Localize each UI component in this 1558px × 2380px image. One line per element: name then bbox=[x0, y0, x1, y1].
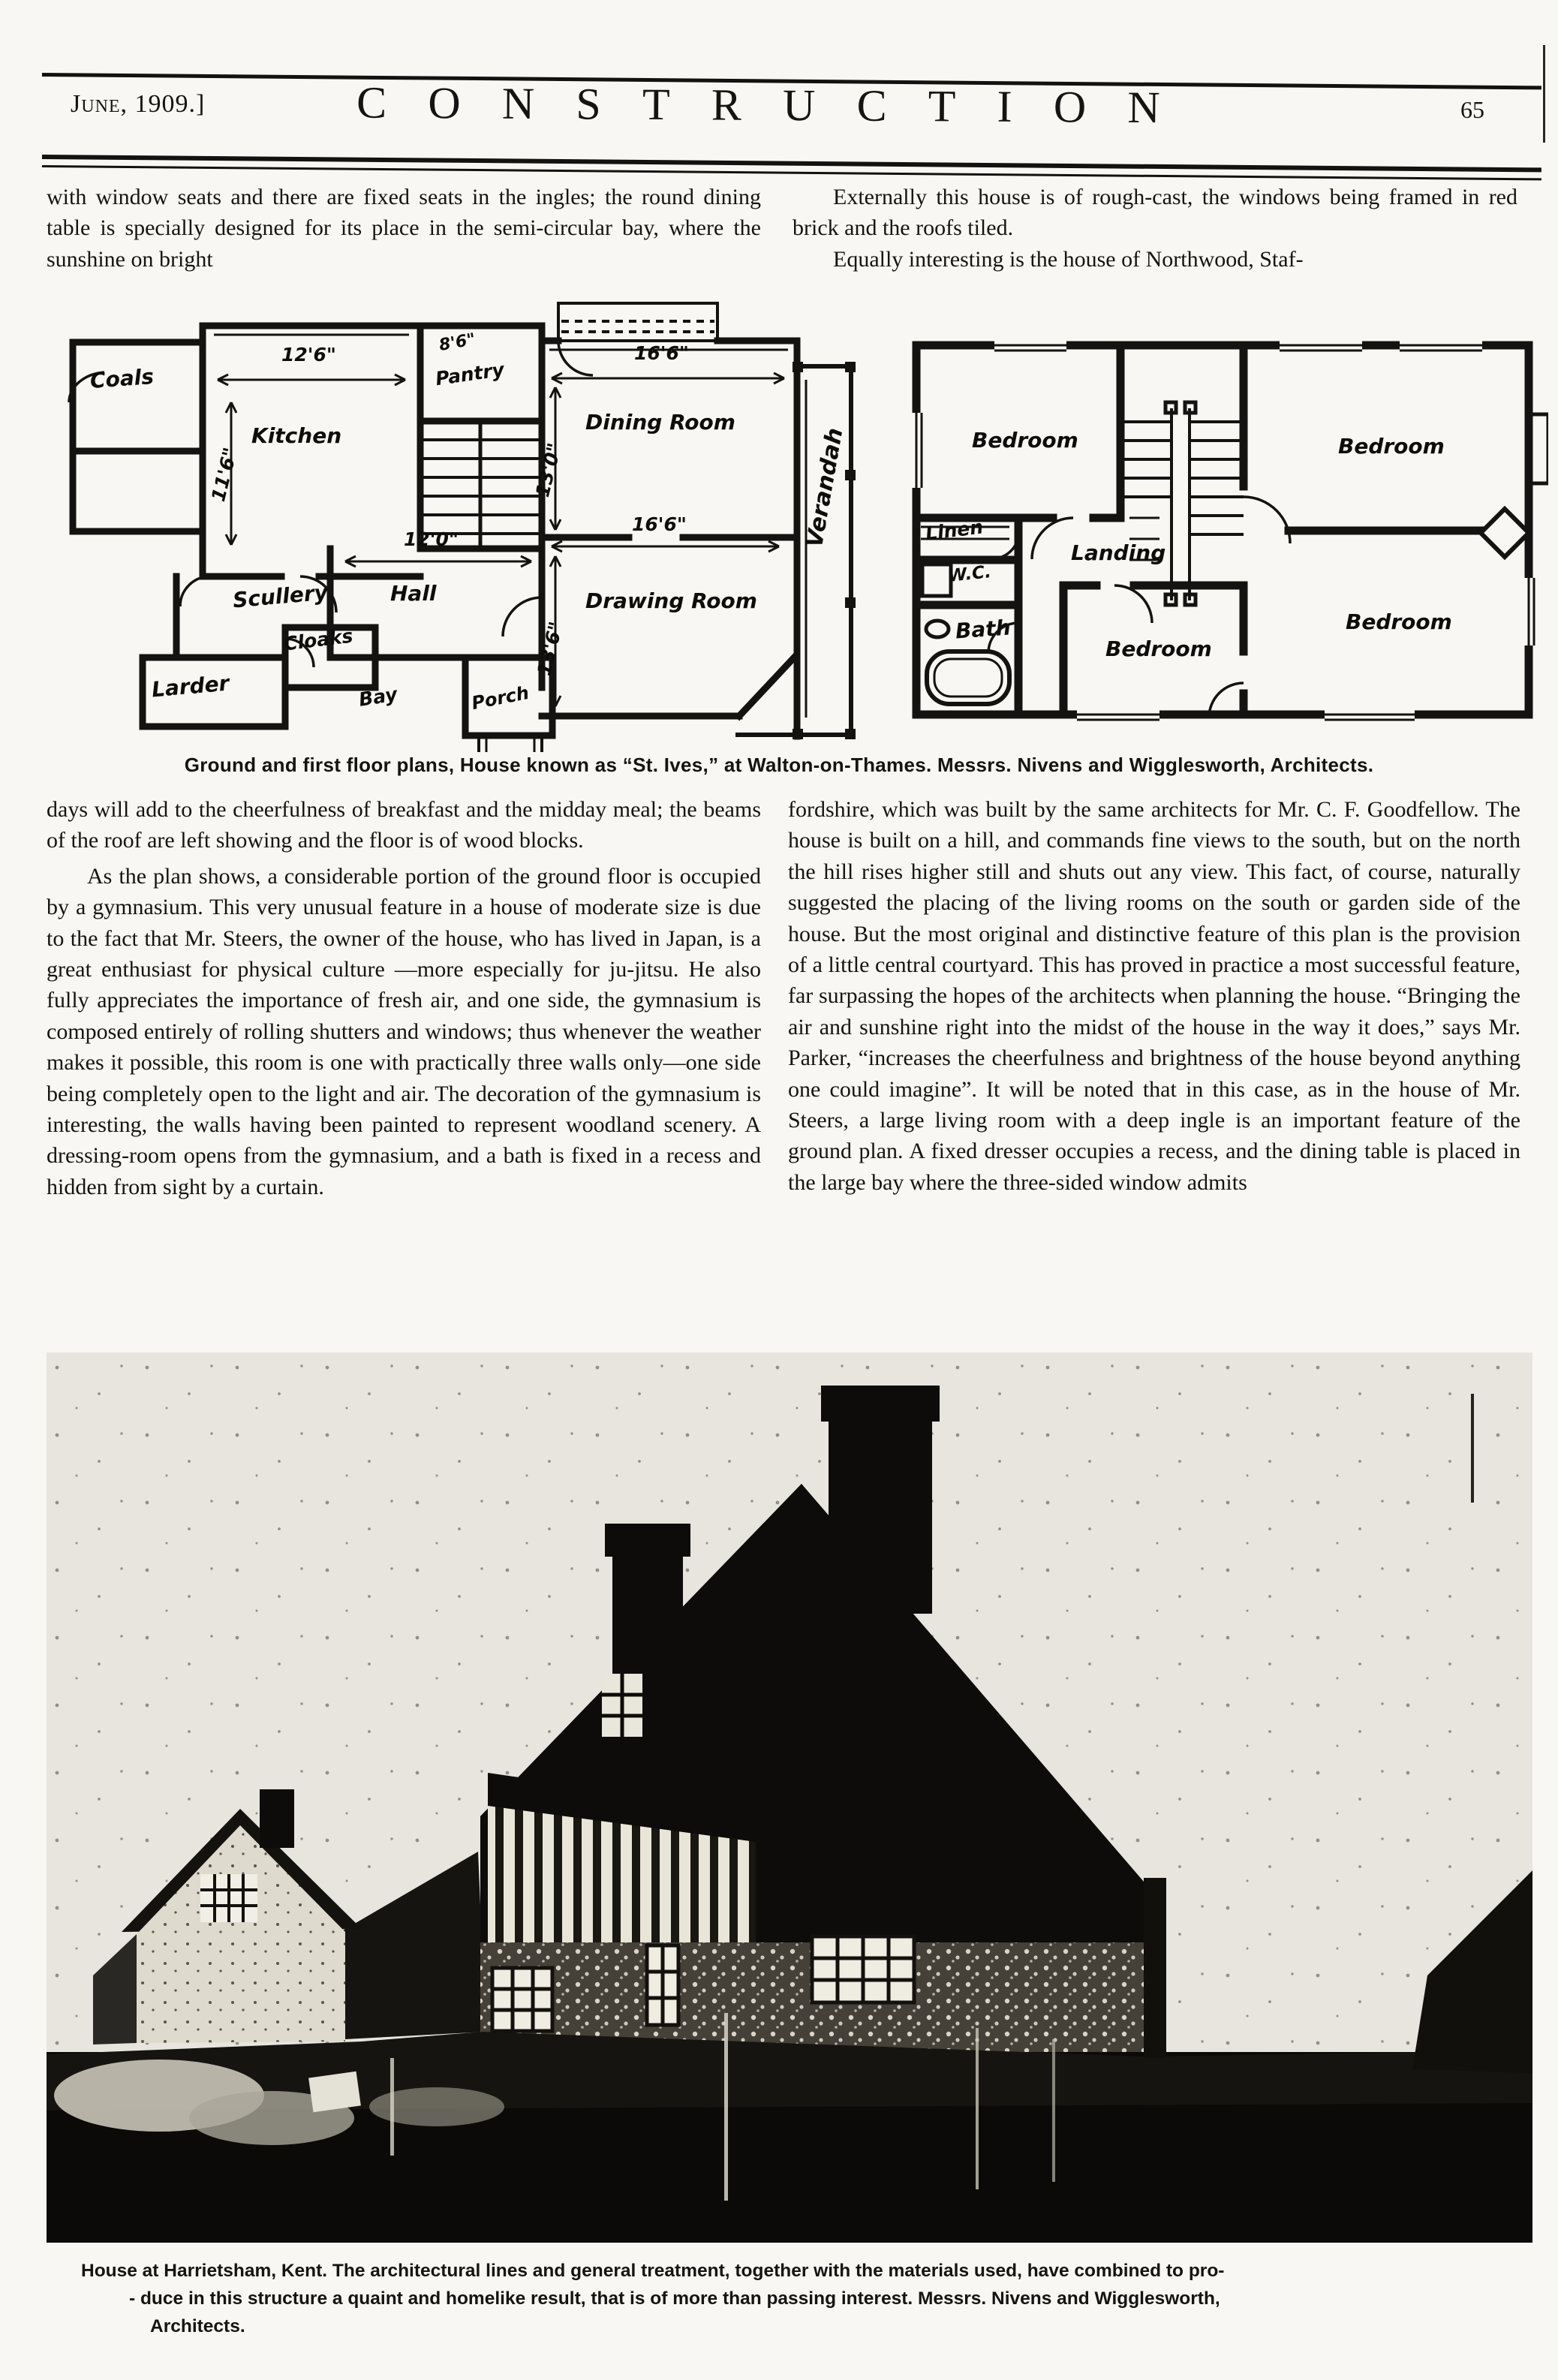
first-floor-plan: Bedroom Bedroom Linen Landing W.C. Bath … bbox=[904, 330, 1548, 736]
room-label-hall: Hall bbox=[390, 581, 437, 606]
scan-edge-mark bbox=[1543, 45, 1545, 143]
intro-column-right: Externally this house is of rough-cast, … bbox=[793, 182, 1517, 275]
intro-right-para1: Externally this house is of rough-cast, … bbox=[793, 182, 1517, 244]
article-column-right: fordshire, which was built by the same a… bbox=[788, 794, 1520, 1198]
page-number: 65 bbox=[1460, 96, 1484, 124]
photo-caption-line1: House at Harrietsham, Kent. The architec… bbox=[81, 2258, 1507, 2285]
house-photograph-image bbox=[47, 1352, 1532, 2243]
intro-left-text: with window seats and there are fixed se… bbox=[47, 182, 761, 275]
article-column-left: days will add to the cheerfulness of bre… bbox=[47, 794, 761, 1202]
journal-title: CONSTRUCTION bbox=[356, 77, 1202, 134]
article-left-para2: As the plan shows, a considerable portio… bbox=[47, 861, 761, 1202]
room-label-dining-room: Dining Room bbox=[585, 410, 735, 435]
room-label-bath: Bath bbox=[955, 615, 1012, 643]
room-label-coals: Coals bbox=[89, 364, 155, 393]
photo-caption: House at Harrietsham, Kent. The architec… bbox=[81, 2258, 1507, 2340]
first-floor-plan-drawing bbox=[904, 330, 1548, 736]
plans-caption: Ground and first floor plans, House know… bbox=[0, 754, 1558, 777]
house-photograph bbox=[47, 1352, 1532, 2243]
dim-dining-width: 16'6" bbox=[634, 342, 689, 364]
article-right-para1: fordshire, which was built by the same a… bbox=[788, 794, 1520, 1198]
issue-date: June, 1909.] bbox=[71, 90, 205, 119]
intro-right-para2: Equally interesting is the house of Nort… bbox=[793, 244, 1517, 275]
photo-caption-line2: - duce in this structure a quaint and ho… bbox=[81, 2285, 1507, 2313]
dim-drawing-width: 16'6" bbox=[632, 513, 687, 535]
room-label-bedroom-se: Bedroom bbox=[1346, 609, 1452, 634]
article-left-para1: days will add to the cheerfulness of bre… bbox=[47, 794, 761, 856]
photo-caption-line3: Architects. bbox=[81, 2313, 1507, 2341]
room-label-landing: Landing bbox=[1071, 540, 1165, 565]
room-label-drawing-room: Drawing Room bbox=[585, 588, 757, 613]
intro-column-left: with window seats and there are fixed se… bbox=[47, 182, 761, 275]
dim-kitchen-width: 12'6" bbox=[281, 344, 336, 366]
room-label-kitchen: Kitchen bbox=[251, 423, 341, 448]
room-label-bedroom-ne: Bedroom bbox=[1338, 434, 1445, 459]
ground-floor-plan: Coals Kitchen Pantry Scullery Hall Larde… bbox=[60, 297, 862, 752]
dim-hall-width: 12'0" bbox=[404, 528, 459, 550]
header-rule-double-1 bbox=[42, 155, 1541, 172]
room-label-bedroom-nw: Bedroom bbox=[972, 428, 1078, 453]
room-label-bedroom-sw: Bedroom bbox=[1105, 636, 1212, 661]
